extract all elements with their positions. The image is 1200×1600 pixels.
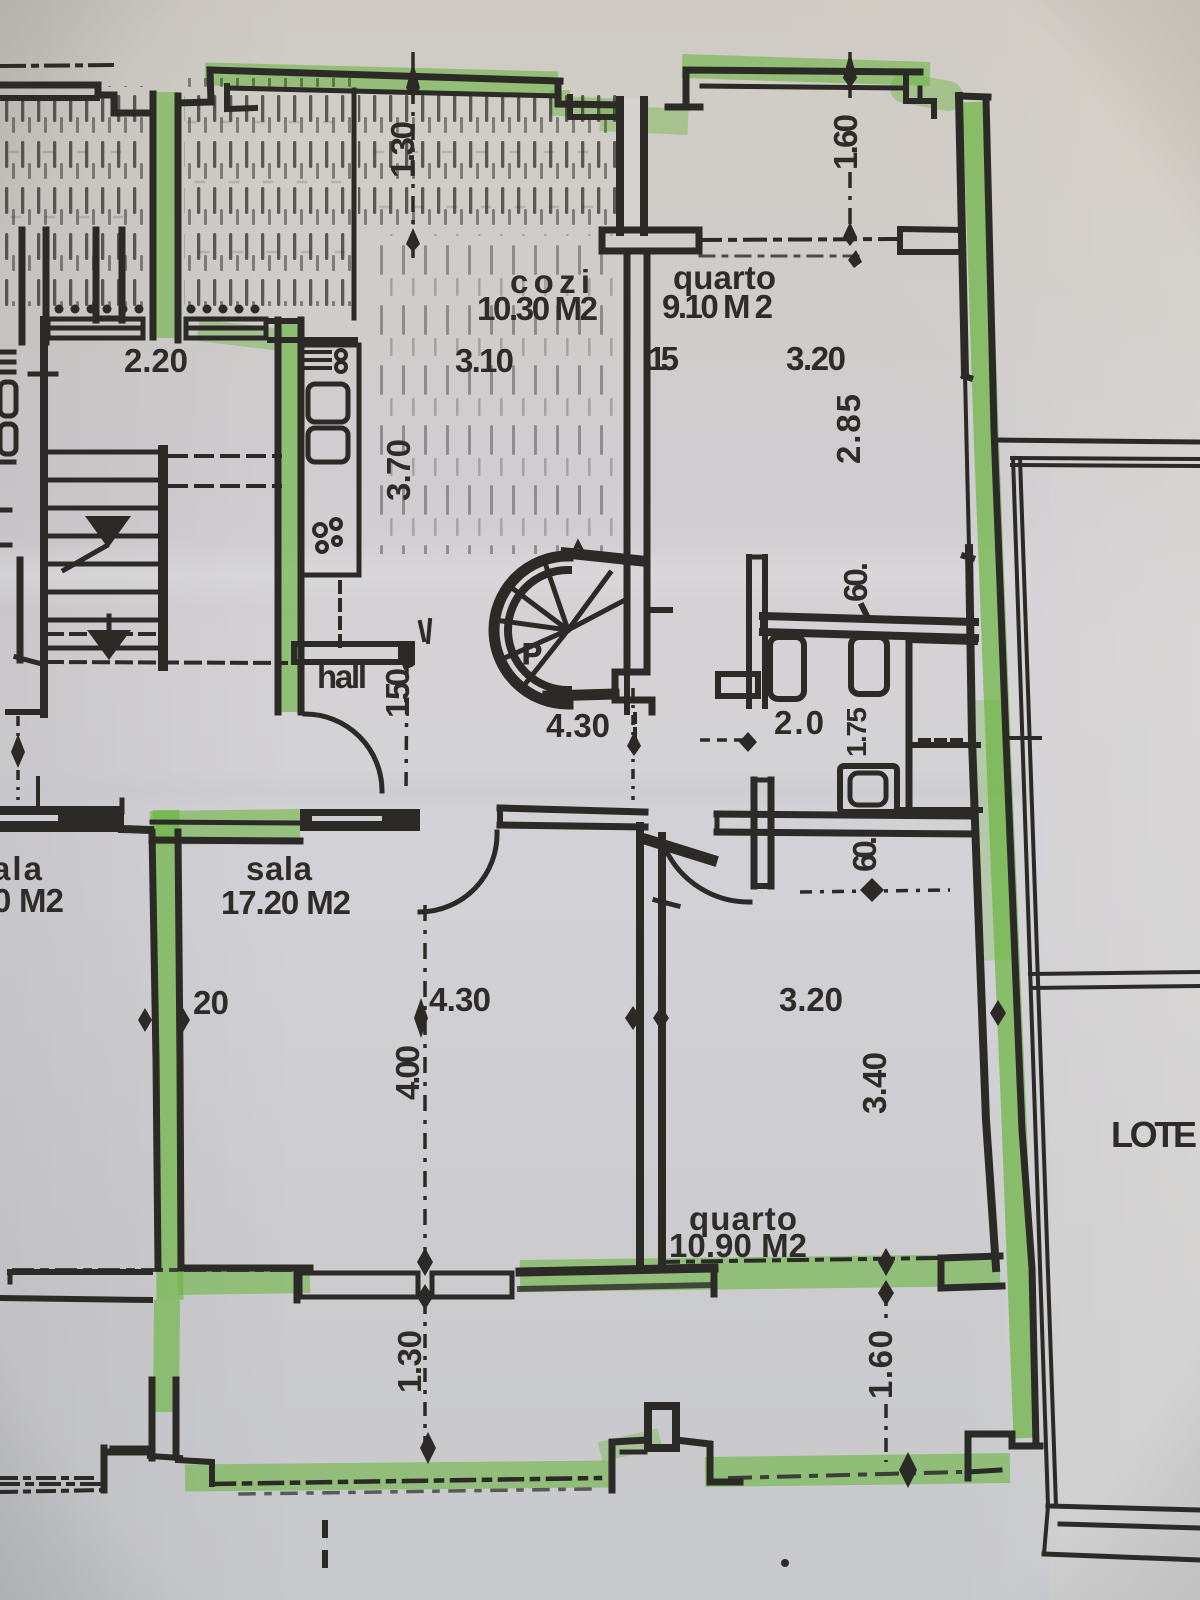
svg-text:3.70: 3.70 (380, 439, 417, 501)
svg-text:3.20: 3.20 (786, 340, 846, 377)
svg-text:hall: hall (317, 658, 367, 695)
svg-text:1.60: 1.60 (862, 1330, 899, 1399)
svg-text:2.0: 2.0 (774, 704, 824, 741)
svg-text:1.30: 1.30 (391, 1330, 428, 1393)
svg-text:17.20 M2: 17.20 M2 (221, 884, 351, 921)
svg-text:4.00: 4.00 (389, 1045, 426, 1100)
svg-text:1.60: 1.60 (827, 114, 864, 170)
svg-text:LOTE: LOTE (1111, 1114, 1197, 1155)
svg-text:P: P (522, 638, 542, 671)
svg-text:sala: sala (246, 850, 313, 887)
svg-text:3.10: 3.10 (455, 342, 514, 379)
svg-text:20: 20 (193, 984, 229, 1021)
svg-text:60.: 60. (837, 562, 874, 602)
svg-text:10.90 M2: 10.90 M2 (669, 1227, 807, 1264)
svg-text:60.: 60. (846, 836, 883, 872)
svg-text:'0 M2: '0 M2 (0, 882, 64, 919)
svg-text:3.20: 3.20 (779, 981, 843, 1018)
svg-text:1.50: 1.50 (379, 668, 416, 718)
svg-text:1.75: 1.75 (841, 707, 872, 757)
svg-text:10.30 M2: 10.30 M2 (477, 290, 598, 327)
svg-text:3.40: 3.40 (856, 1052, 893, 1114)
svg-text:9.10 M 2: 9.10 M 2 (662, 288, 773, 325)
svg-text:2.20: 2.20 (124, 342, 188, 379)
svg-text:4.30: 4.30 (429, 981, 491, 1018)
svg-text:4.30: 4.30 (546, 707, 610, 744)
svg-text:.15: .15 (644, 340, 679, 377)
svg-text:1.30: 1.30 (384, 121, 421, 178)
svg-text:2.85: 2.85 (830, 394, 867, 464)
